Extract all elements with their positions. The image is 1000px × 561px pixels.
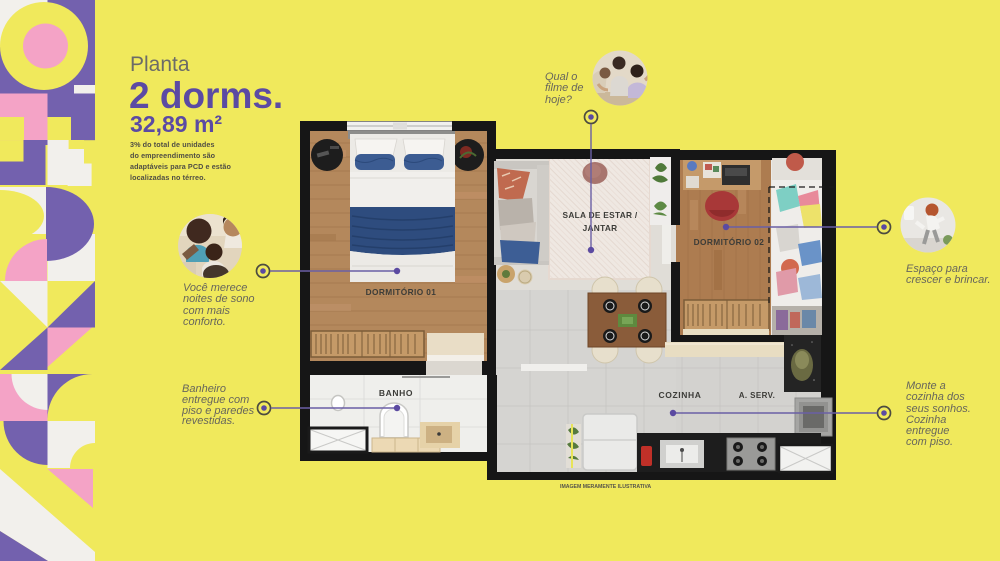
svg-text:BANHO: BANHO (379, 388, 413, 398)
svg-text:COZINHA: COZINHA (659, 390, 702, 400)
svg-text:SALA DE ESTAR /: SALA DE ESTAR / (562, 210, 637, 220)
svg-text:A. SERV.: A. SERV. (739, 391, 776, 400)
svg-text:DORMITÓRIO 01: DORMITÓRIO 01 (366, 286, 437, 297)
svg-text:DORMITÓRIO 02: DORMITÓRIO 02 (694, 236, 765, 247)
svg-text:JANTAR: JANTAR (583, 223, 618, 233)
